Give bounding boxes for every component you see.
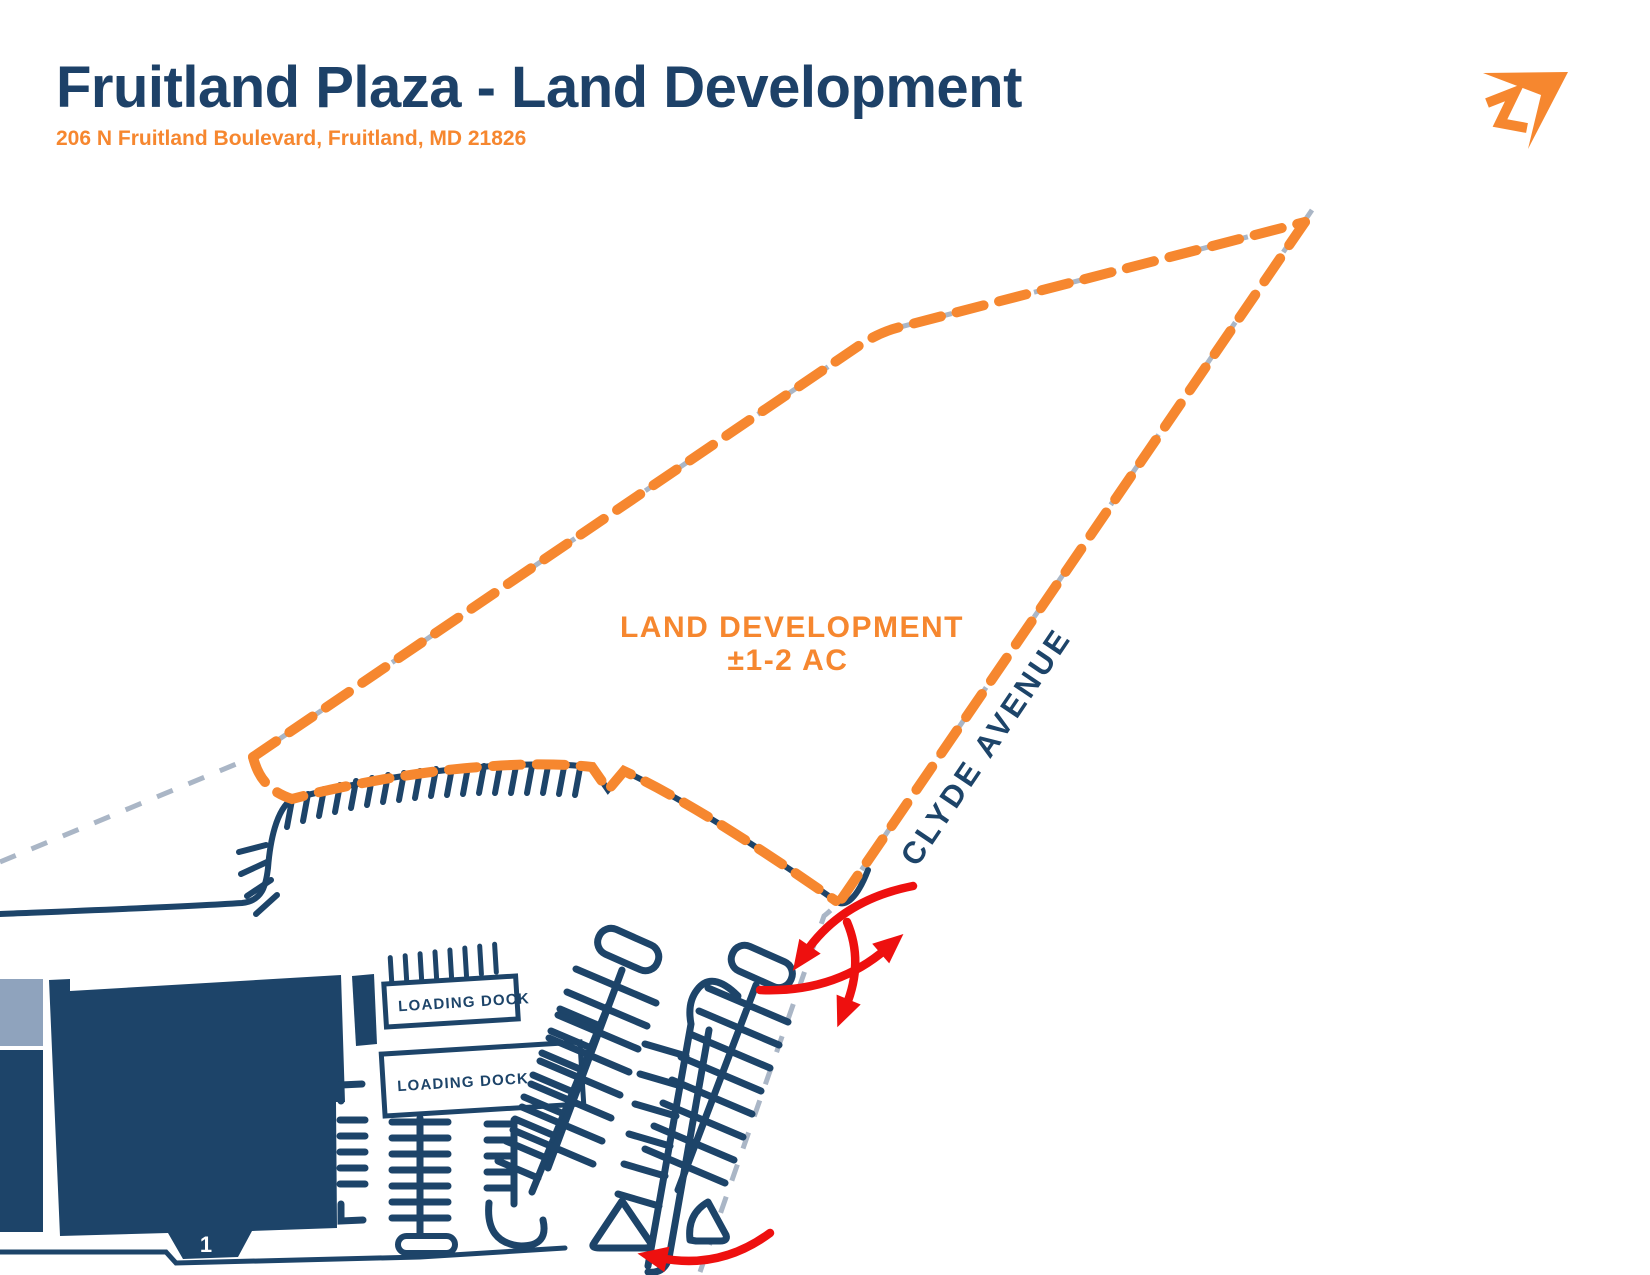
parking-bracket-row xyxy=(340,1084,365,1221)
curb-island-1 xyxy=(593,1201,651,1248)
parcel-label-line1: LAND DEVELOPMENT xyxy=(620,611,964,644)
west-building-light-unit xyxy=(0,979,43,1046)
diagonal-row-3-cap xyxy=(727,941,796,992)
street-label-clyde-avenue: CLYDE AVENUE xyxy=(894,621,1079,872)
gray-dashed-line-north xyxy=(0,222,1305,862)
parcel-label-line2: ±1-2 AC xyxy=(728,644,849,677)
main-building xyxy=(49,975,345,1259)
map-labels: LAND DEVELOPMENT ±1-2 AC CLYDE AVENUE xyxy=(620,611,1078,872)
front-sidewalk-line xyxy=(0,1248,565,1263)
loading-dock-1-group: LOADING DOCK xyxy=(382,942,531,1027)
site-plan-map: 1 LOADING DOCK LOADING DOCK xyxy=(0,0,1650,1275)
access-arrow-out-south xyxy=(846,922,855,1006)
building-dock-connector xyxy=(352,974,377,1046)
parking-comb-a xyxy=(392,1118,448,1236)
parking-comb-b-hook xyxy=(489,1203,544,1246)
parking-comb-a-endcap xyxy=(398,1236,455,1253)
diagonal-row-2-cap xyxy=(593,924,662,975)
parcel-boundary xyxy=(253,222,1305,904)
loading-dock-2-group: LOADING DOCK xyxy=(381,1042,583,1116)
buildings: 1 xyxy=(0,974,377,1259)
site-plan-page: Fruitland Plaza - Land Development 206 N… xyxy=(0,0,1650,1275)
building-unit-label: 1 xyxy=(200,1232,212,1257)
